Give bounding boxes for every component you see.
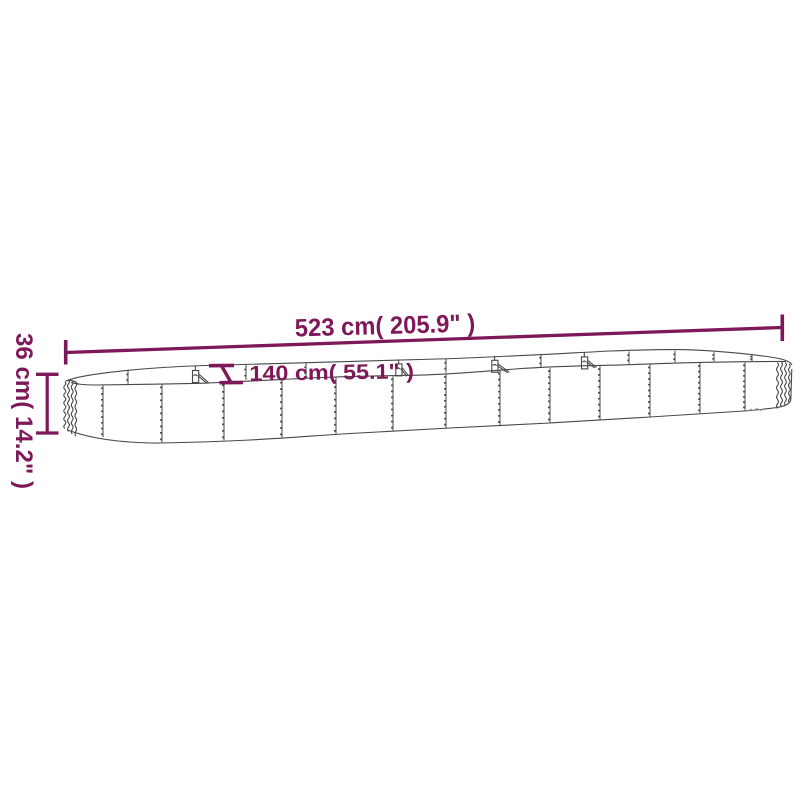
svg-text:140 cm( 55.1" ): 140 cm( 55.1" ) — [249, 359, 414, 386]
svg-text:523 cm( 205.9" ): 523 cm( 205.9" ) — [294, 309, 475, 342]
svg-text:36 cm( 14.2" ): 36 cm( 14.2" ) — [10, 333, 37, 489]
